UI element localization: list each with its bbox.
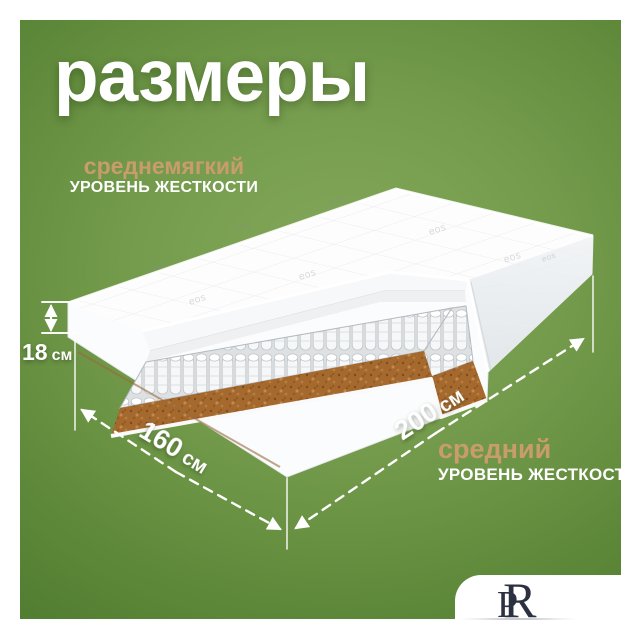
softness-top-block: среднемягкий УРОВЕНЬ ЖЕСТКОСТИ <box>58 153 270 198</box>
fabric-logo-mark: eos <box>233 219 253 235</box>
softness-top-label: УРОВЕНЬ ЖЕСТКОСТИ <box>58 179 270 197</box>
height-label: 18см <box>22 339 72 365</box>
softness-bottom-block: средний УРОВЕНЬ ЖЕСТКОСТИ <box>438 434 638 485</box>
softness-bottom-value: средний <box>438 434 638 465</box>
brand-monogram: PR <box>497 571 537 629</box>
page-title: размеры <box>54 40 369 113</box>
monogram-letter-r: R <box>503 572 536 628</box>
brand-logo-box: PR <box>455 575 640 640</box>
softness-bottom-label: УРОВЕНЬ ЖЕСТКОСТИ <box>438 465 638 485</box>
softness-top-value: среднемягкий <box>58 153 270 179</box>
